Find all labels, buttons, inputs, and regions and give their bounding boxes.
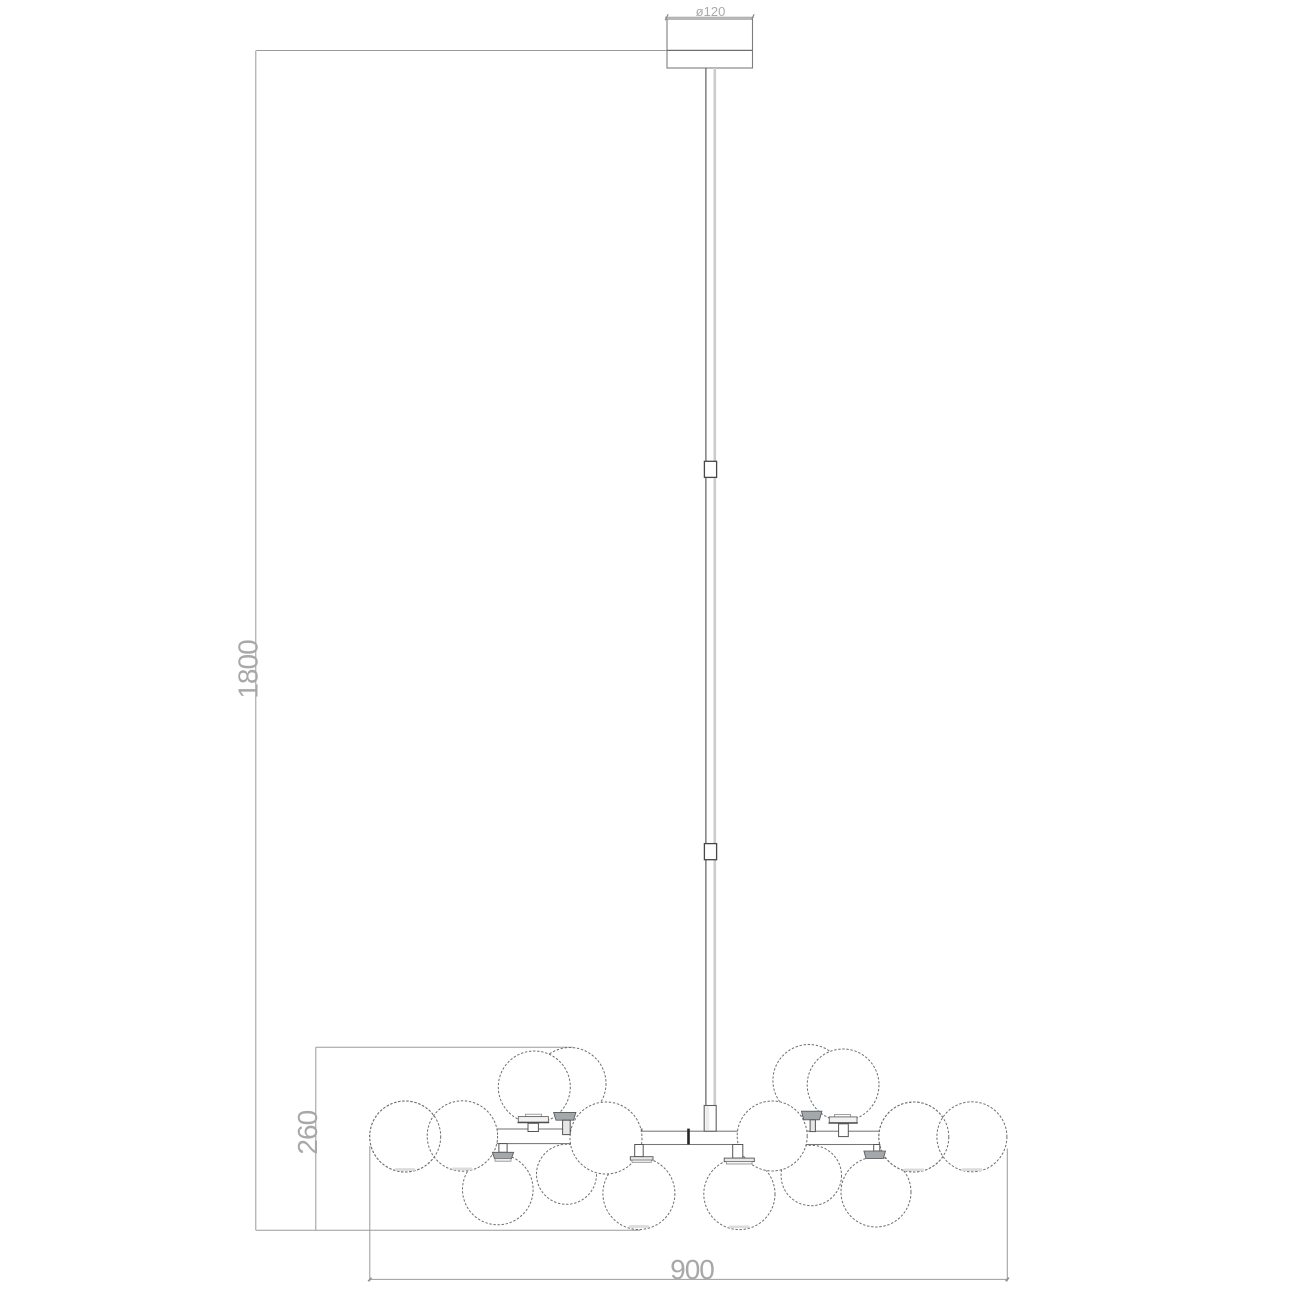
svg-text:900: 900 bbox=[670, 1254, 714, 1285]
svg-text:1800: 1800 bbox=[232, 640, 263, 699]
svg-text:ø120: ø120 bbox=[696, 4, 726, 19]
svg-text:260: 260 bbox=[292, 1110, 323, 1154]
